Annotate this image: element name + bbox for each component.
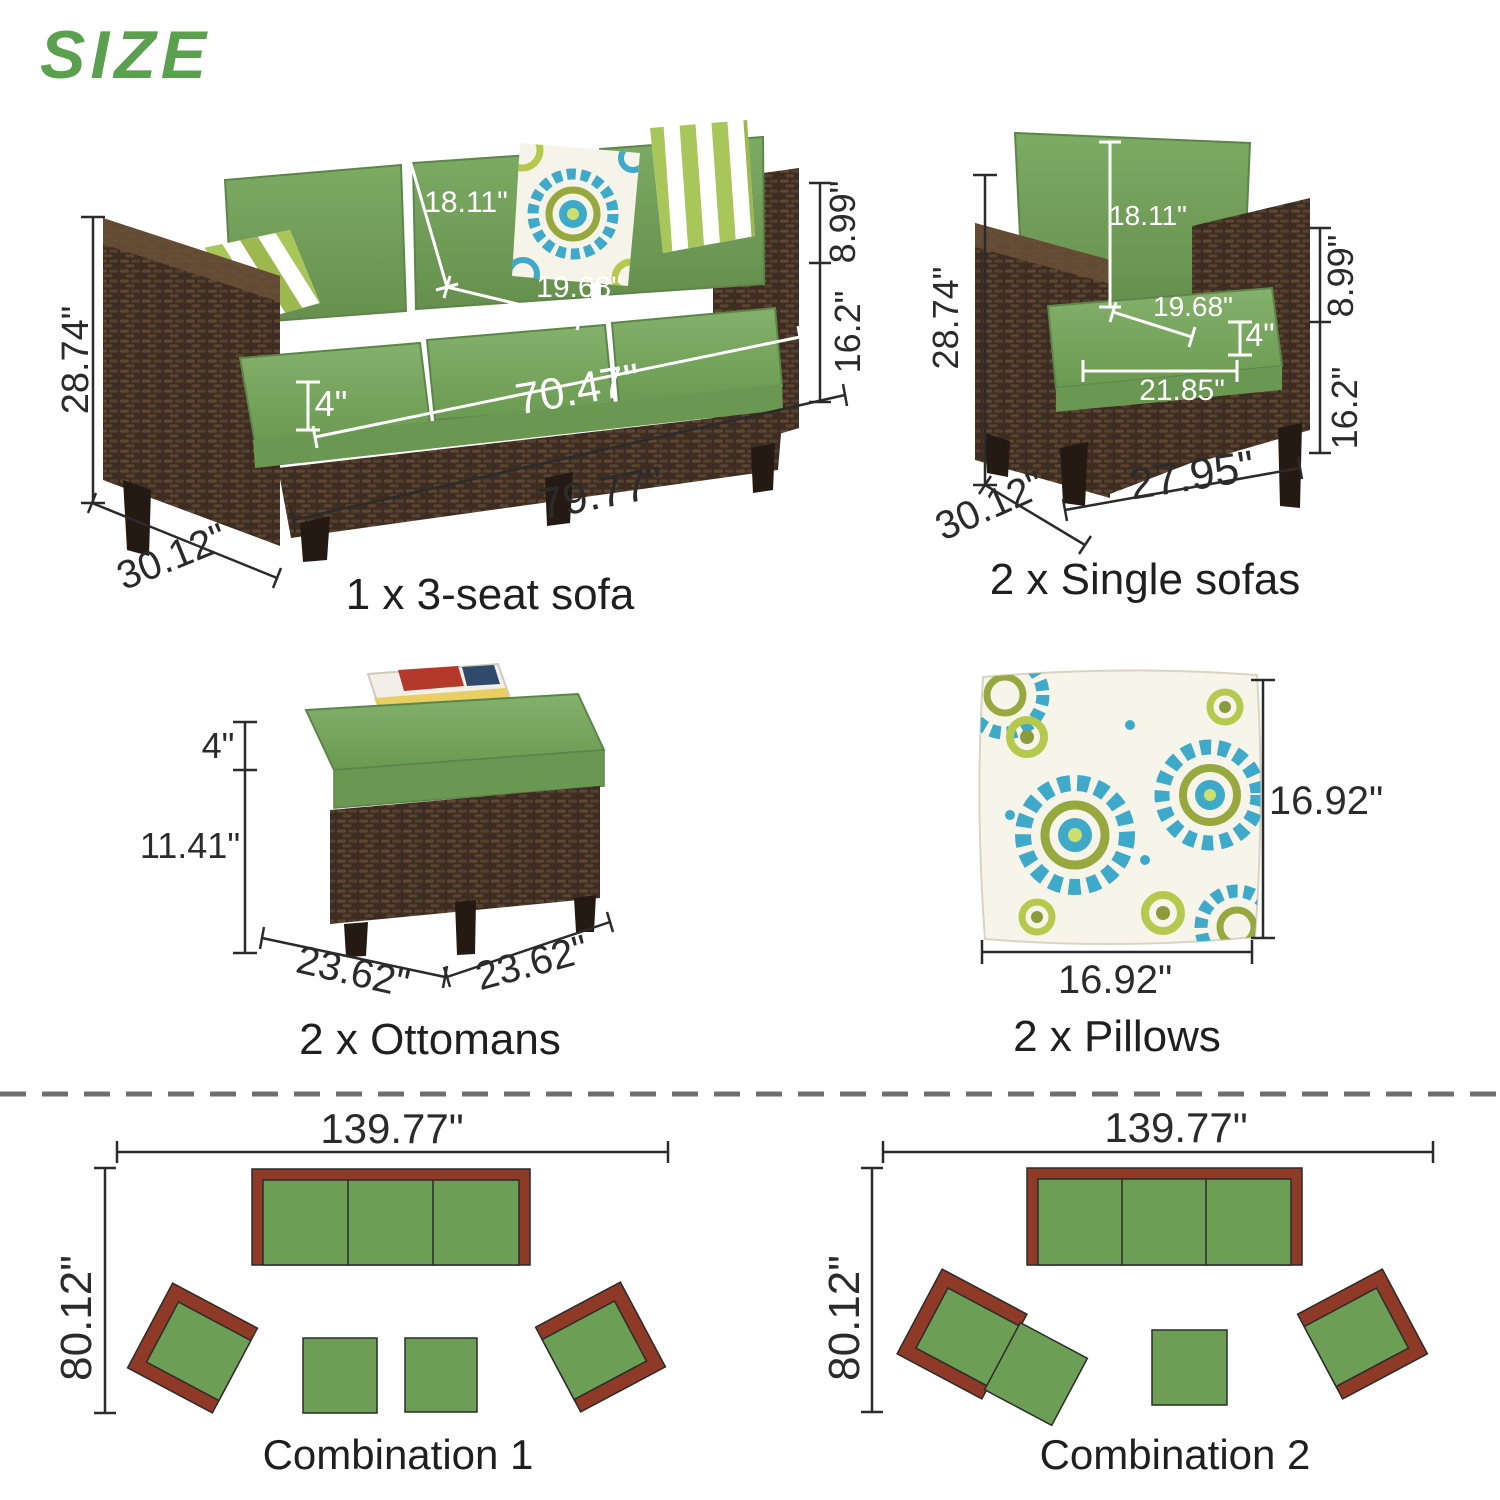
combination1-width-dim: 139.77" (320, 1108, 463, 1150)
chair-seat-width-dim: 21.85" (1139, 376, 1225, 406)
chair-arm-height-dim: 8.99" (1323, 235, 1359, 318)
pillow-height-dim: 16.92" (1269, 781, 1383, 821)
sofa-caption: 1 x 3-seat sofa (346, 573, 635, 617)
combination1-ottoman-top (405, 1338, 477, 1412)
combination1-ottoman-top (303, 1338, 377, 1413)
chair-back-height-dim: 18.11" (1109, 202, 1187, 230)
sofa-cushion-thickness-dim: 4" (315, 386, 348, 422)
sofa-back-height-dim: 18.11" (424, 188, 508, 218)
combination1-right-chair-top (536, 1282, 666, 1412)
chair-height-dim: 28.74" (928, 267, 964, 370)
combination1-left-chair-top (128, 1283, 258, 1413)
combination1-plan (94, 1141, 668, 1413)
sofa-height-dim: 28.74" (57, 306, 95, 415)
combination2-caption: Combination 2 (1040, 1434, 1311, 1476)
chair-seat-height-dim: 16.2" (1327, 367, 1363, 450)
chair-cushion-thickness-dim: 4" (1245, 319, 1274, 351)
single-sofa-caption: 2 x Single sofas (990, 558, 1301, 602)
combination2-width-dim: 139.77" (1104, 1107, 1247, 1149)
size-diagram: SIZE (0, 0, 1500, 1500)
sofa-arm-height-dim: 8.99" (825, 181, 861, 264)
sofa-illustration (103, 104, 799, 562)
sofa-seat-height-dim: 16.2" (830, 291, 866, 374)
combination2-plan (861, 1141, 1433, 1425)
combination2-ottoman-top (1152, 1330, 1227, 1405)
ottoman-cushion-thickness-dim: 4" (202, 728, 235, 764)
ottoman-base-height-dim: 11.41" (140, 828, 240, 864)
combination1-caption: Combination 1 (263, 1434, 534, 1476)
pillow-caption: 2 x Pillows (1013, 1015, 1221, 1059)
combination2-right-chair-top (1298, 1269, 1428, 1399)
combination2-sofa-top (1027, 1168, 1302, 1265)
sofa-seat-depth-dim: 19.68" (536, 273, 622, 303)
pillow-illustration (967, 657, 1273, 963)
ottoman-caption: 2 x Ottomans (299, 1018, 561, 1062)
chair-seat-depth-dim: 19.68" (1153, 293, 1233, 321)
combination1-sofa-top (252, 1169, 530, 1265)
medallion-pillow (504, 132, 647, 294)
combination2-depth-dim: 80.12" (823, 1255, 867, 1381)
combination1-depth-dim: 80.12" (55, 1255, 99, 1381)
pillow-width-dim: 16.92" (1058, 960, 1172, 1000)
ottoman-illustration (306, 664, 604, 957)
